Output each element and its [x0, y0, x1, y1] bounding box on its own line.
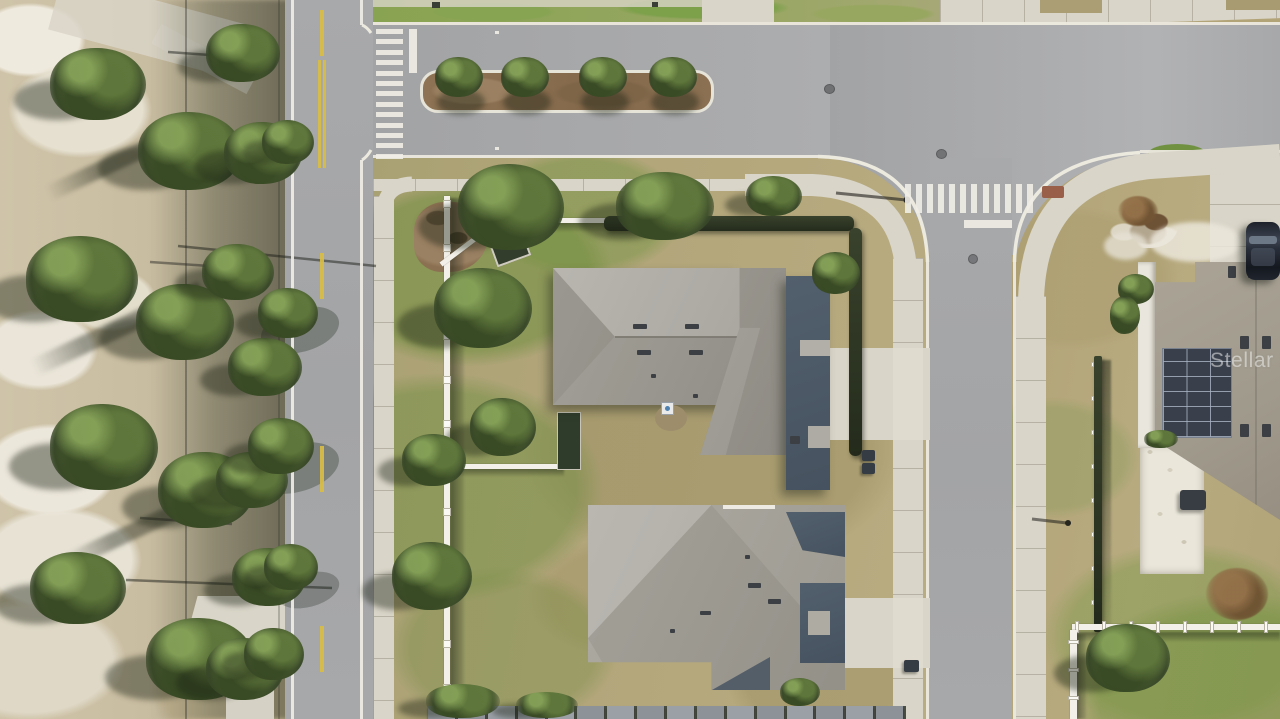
roof-vent	[633, 324, 647, 329]
fence-post	[1068, 640, 1079, 644]
fence-post	[1102, 621, 1106, 633]
sand-patch	[1150, 222, 1242, 262]
yard-object	[652, 2, 658, 7]
edge-line-east-lower	[360, 160, 363, 719]
median-tree	[435, 57, 483, 97]
fence-post	[1129, 621, 1133, 633]
tree-shadow-on-road	[256, 298, 345, 361]
fence-post	[1091, 532, 1094, 537]
tree-shadow-on-road	[247, 433, 344, 502]
crosswalk-stripe	[376, 91, 403, 96]
roof-vent-small	[745, 555, 750, 559]
west-fence	[444, 196, 450, 719]
manhole	[824, 84, 835, 94]
lower-house-roof	[588, 505, 845, 690]
dark-fence	[1094, 356, 1102, 632]
trash-bin	[862, 463, 875, 474]
crosswalk-stripe	[376, 133, 403, 138]
center-line-yellow	[323, 60, 326, 168]
crosswalk-stripe	[376, 71, 403, 76]
crosswalk-stripe	[376, 102, 403, 107]
fence-post	[443, 376, 451, 384]
fence-post	[443, 596, 451, 604]
roof-vent	[637, 350, 651, 355]
manhole	[968, 254, 978, 264]
fence-post	[1091, 430, 1094, 435]
sand-patch	[1104, 232, 1148, 260]
east-hedge	[849, 228, 862, 456]
median-tree	[501, 57, 549, 97]
roof-vent	[700, 611, 711, 615]
crosswalk-stripe	[376, 39, 403, 44]
crosswalk-stripe	[376, 60, 403, 65]
crosswalk-stripe	[376, 50, 403, 55]
fence-panel	[458, 706, 485, 719]
pole-crossarm-shadow	[150, 262, 240, 268]
crosswalk-stripe	[376, 112, 403, 117]
fence-post	[1091, 600, 1094, 605]
fence-post	[1068, 668, 1079, 672]
fence-panel	[548, 706, 575, 719]
fence-panel	[607, 706, 634, 719]
roof-vent	[1240, 336, 1249, 349]
bottom-fence	[428, 706, 906, 719]
white-fence-vertical	[1070, 630, 1077, 719]
fence-panel	[757, 706, 784, 719]
fence-post	[443, 684, 451, 692]
powerline-shadow	[178, 246, 376, 266]
crosswalk-stripe	[905, 184, 911, 213]
mid-fence	[446, 464, 564, 469]
grill	[1180, 490, 1206, 510]
median	[420, 70, 714, 113]
crosswalk-stripe	[916, 184, 922, 213]
paint-dot	[495, 147, 499, 150]
fence-post	[443, 552, 451, 560]
fence-post	[1183, 621, 1187, 633]
center-line-dash	[320, 446, 324, 492]
fence-post	[1091, 464, 1094, 469]
manhole	[936, 149, 947, 159]
crosswalk-stripe	[960, 184, 966, 213]
roof-vent	[748, 583, 761, 588]
roof-vent-small	[693, 394, 698, 398]
trash-bin	[904, 660, 919, 672]
roof-step-light	[808, 426, 830, 448]
roof-step-light	[808, 611, 830, 635]
fence-panel	[846, 706, 873, 719]
solar-house-wall	[1138, 262, 1156, 448]
crosswalk-stripe	[376, 81, 403, 86]
trash-bin	[862, 450, 875, 461]
edge-line-east-upper	[360, 0, 363, 25]
crosswalk-stripe	[376, 123, 403, 128]
fence-post	[443, 288, 451, 296]
sidewalk-crossing	[893, 598, 923, 668]
fence-shadow	[494, 222, 606, 231]
fence-post	[1091, 566, 1094, 571]
sidewalk-arc-w	[384, 184, 412, 212]
roof-vent-small	[651, 374, 656, 378]
fence-post	[1091, 362, 1094, 367]
crosswalk-stripe	[983, 184, 989, 213]
fence-shadow	[1072, 632, 1280, 641]
crosswalk-stripe	[376, 154, 403, 159]
patio-equipment-dot	[665, 406, 670, 411]
crosswalk-stripe	[949, 184, 955, 213]
crosswalk-stripe	[376, 143, 403, 148]
roof-vent	[689, 350, 703, 355]
fence-panel	[816, 706, 843, 719]
paint-dot	[495, 31, 499, 34]
roof-vent	[1262, 424, 1271, 437]
fence-post	[1091, 498, 1094, 503]
curb-arc-nw	[362, 25, 371, 33]
edge-line-west	[291, 0, 294, 719]
crosswalk-top	[905, 184, 1033, 213]
stop-bar-west-leg	[409, 29, 417, 73]
ac-unit	[790, 436, 800, 444]
curb-arc-ssw	[362, 150, 371, 160]
fence-post	[1264, 621, 1268, 633]
center-line-dash	[320, 10, 324, 56]
north-fence	[494, 218, 606, 223]
white-fence-horizontal	[1072, 624, 1280, 630]
roof-vent	[685, 324, 699, 329]
fence-panel	[428, 706, 455, 719]
crosswalk-left	[376, 29, 403, 159]
fence-post	[443, 244, 451, 252]
yard-object	[432, 2, 440, 8]
crosswalk-stripe	[927, 184, 933, 213]
main-house-roof	[553, 268, 740, 405]
fence-post	[443, 420, 451, 428]
car-roof-highlight	[1251, 248, 1275, 266]
fence-panel	[876, 706, 903, 719]
fence-post	[443, 200, 451, 208]
fence-post	[1156, 621, 1160, 633]
sidewalk-crossing	[893, 348, 923, 440]
fence-panel	[667, 706, 694, 719]
crosswalk-stripe	[1016, 184, 1022, 213]
roof-vent-small	[670, 629, 675, 633]
fence-panel	[697, 706, 724, 719]
fence-panel	[787, 706, 814, 719]
center-line-yellow	[318, 60, 321, 168]
roof-step-light	[800, 340, 830, 356]
crosswalk-stripe	[938, 184, 944, 213]
median-tree	[579, 57, 627, 97]
roof-seam	[1255, 262, 1257, 520]
median-tree	[649, 57, 697, 97]
garden-shed	[557, 412, 581, 470]
fence-panel	[518, 706, 545, 719]
watermark: Stellar MLS	[1210, 349, 1280, 373]
parked-car	[1246, 222, 1280, 280]
stop-bar-north-leg	[964, 220, 1012, 228]
fence-post	[443, 640, 451, 648]
lamp-shadow	[1032, 519, 1067, 523]
fence-post	[443, 508, 451, 516]
dried-bush	[1206, 568, 1268, 620]
fence-panel	[488, 706, 515, 719]
crosswalk-stripe	[1005, 184, 1011, 213]
fence-post	[443, 332, 451, 340]
fence-panel	[727, 706, 754, 719]
roof-vent	[1240, 424, 1249, 437]
fence-post	[1091, 396, 1094, 401]
car-windshield	[1249, 236, 1277, 244]
roof-vent	[1262, 336, 1271, 349]
fence-panel	[637, 706, 664, 719]
landscape-pad	[1042, 186, 1064, 198]
roof-ridge	[615, 336, 738, 338]
roof-dark-se	[800, 583, 845, 663]
fence-shadow	[446, 468, 564, 476]
fence-shadow	[450, 198, 464, 719]
roof-vent	[1228, 266, 1236, 278]
dried-bush	[1118, 196, 1158, 226]
crosswalk-stripe	[1027, 184, 1033, 213]
fence-shadow	[1076, 634, 1086, 719]
fence-post	[1068, 696, 1079, 700]
roof-eave-white	[723, 505, 775, 509]
center-line-dash	[320, 626, 324, 672]
crosswalk-stripe	[971, 184, 977, 213]
fence-post	[1210, 621, 1214, 633]
roof-dark-ne	[786, 512, 845, 557]
crosswalk-stripe	[994, 184, 1000, 213]
fence-post	[1237, 621, 1241, 633]
aerial-photo: Stellar MLS	[0, 0, 1280, 719]
lamp-base	[1065, 520, 1071, 526]
center-line-dash	[320, 253, 324, 299]
roof-vent	[768, 599, 781, 604]
main-house-dark-wing	[786, 276, 830, 490]
fence-panel	[577, 706, 604, 719]
tree-shadow-on-road	[273, 565, 344, 614]
north-hedge	[604, 216, 854, 231]
crosswalk-stripe	[376, 29, 403, 34]
pole-crossarm-shadow	[168, 52, 252, 58]
